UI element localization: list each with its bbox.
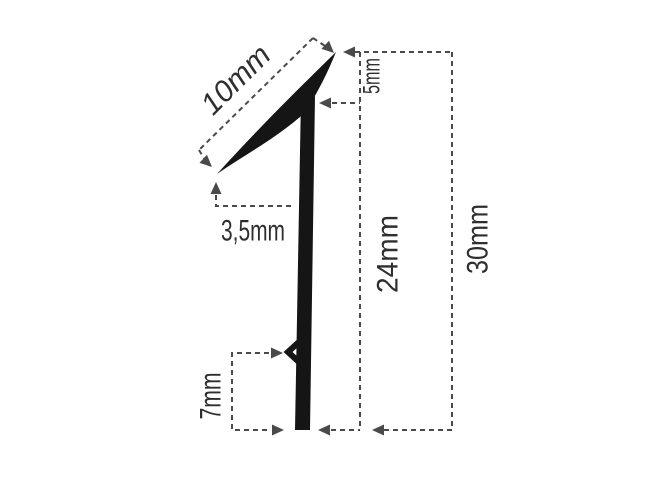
profile-drawing: 10mm 5mm 3,5mm 24mm 30mm 7mm xyxy=(0,0,666,500)
dim-label-30mm: 30mm xyxy=(462,204,495,274)
diagram-canvas: 10mm 5mm 3,5mm 24mm 30mm 7mm xyxy=(0,0,666,500)
dim-label-5mm: 5mm xyxy=(359,58,386,94)
dim-label-3-5mm: 3,5mm xyxy=(221,215,285,248)
diagram-background xyxy=(0,0,666,500)
dim-label-24mm: 24mm xyxy=(372,215,405,293)
dim-label-7mm: 7mm xyxy=(195,373,228,420)
